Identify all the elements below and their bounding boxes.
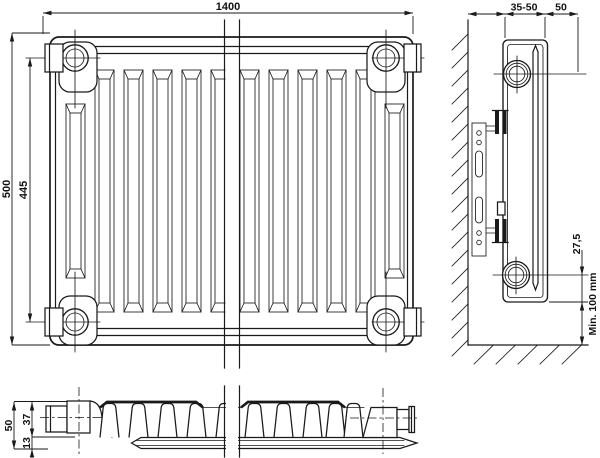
bottom-lower-dim-label: 13 [21, 437, 33, 449]
bottom-rail [62, 329, 401, 336]
front-panel-plate [132, 438, 418, 449]
bracket-notch [498, 202, 506, 215]
side-view: 35-50 50 27,5 Min. 100 mm [452, 2, 599, 365]
bottom-view: 50 37 13 [3, 384, 417, 458]
floor-hatching [474, 346, 581, 365]
bottom-upper-dim-label: 37 [21, 414, 33, 426]
side-depth-dim-label: 50 [555, 2, 567, 14]
bracket-clip-bottom [495, 219, 499, 242]
floor-clearance-dim-label: Min. 100 mm [587, 272, 599, 335]
wall-distance-dim-label: 35-50 [511, 2, 538, 14]
drawing-canvas: 1400 500 445 [0, 0, 600, 458]
connection-spacing-dim-label: 445 [18, 181, 30, 199]
bottom-depth-dim-label: 50 [3, 420, 15, 432]
bracket-clip-top [495, 111, 499, 134]
front-height-dim-label: 500 [1, 180, 13, 198]
front-view: 1400 500 445 [1, 1, 424, 368]
top-rail [62, 47, 401, 54]
front-width-dim-label: 1400 [216, 1, 240, 13]
radiator-technical-drawing: 1400 500 445 [0, 0, 600, 458]
wall-hatching [452, 34, 468, 356]
bottom-right-valve [363, 407, 415, 438]
pipe-offset-dim-label: 27,5 [571, 234, 583, 255]
